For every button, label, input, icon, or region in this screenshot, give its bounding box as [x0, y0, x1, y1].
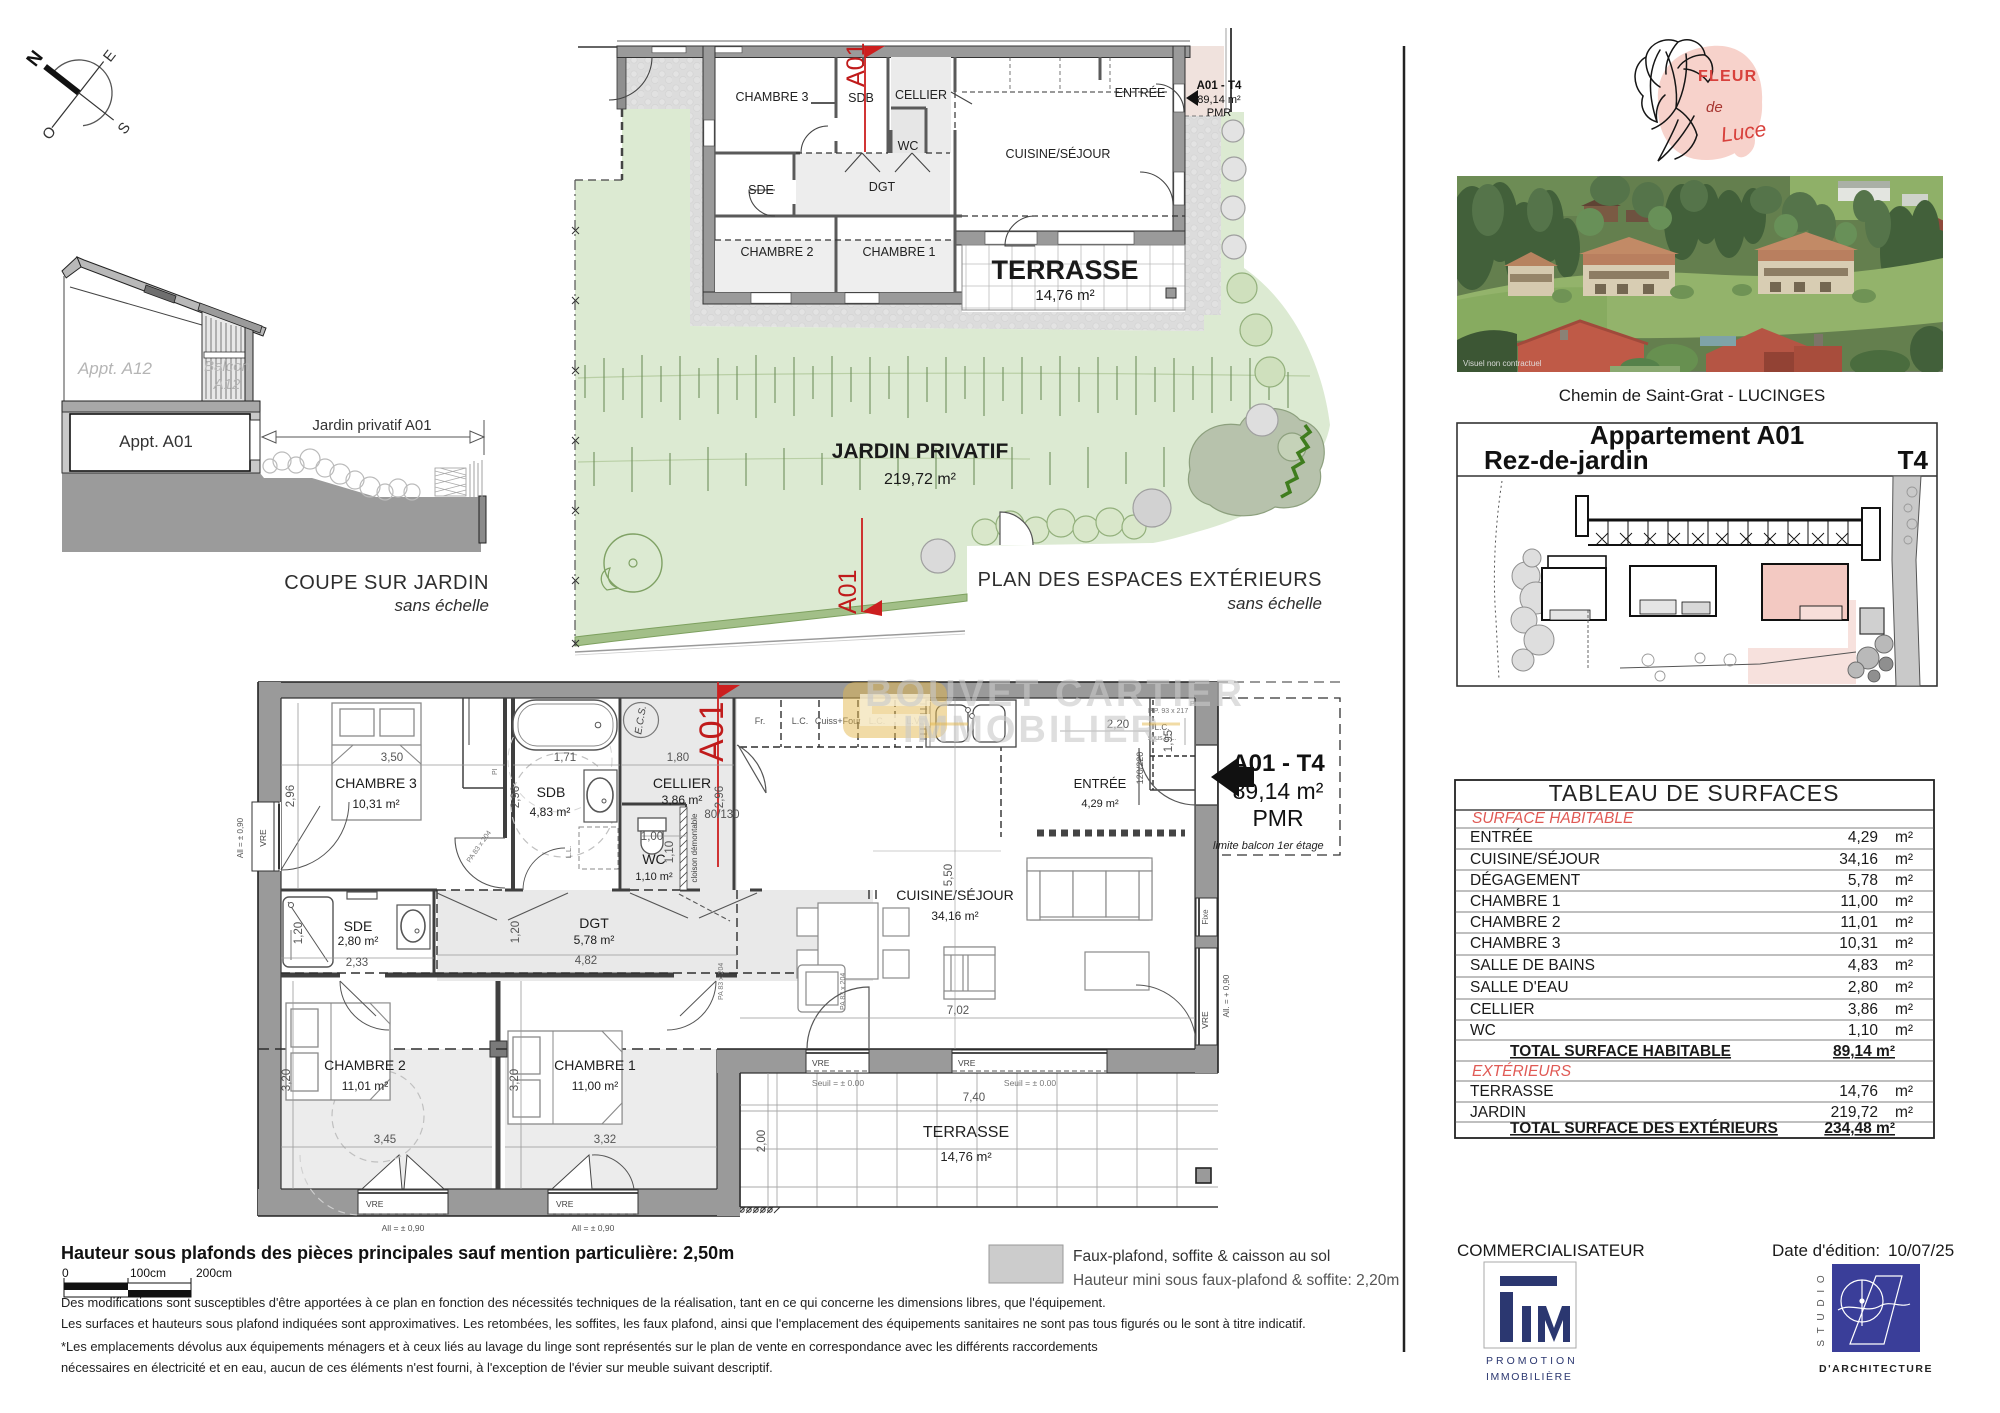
svg-text:D'ARCHITECTURE: D'ARCHITECTURE: [1819, 1363, 1933, 1375]
svg-text:DÉGAGEMENT: DÉGAGEMENT: [1470, 872, 1581, 889]
svg-text:1,20: 1,20: [510, 921, 522, 943]
svg-text:1,95: 1,95: [1163, 730, 1175, 752]
svg-text:COUPE SUR JARDIN: COUPE SUR JARDIN: [284, 572, 489, 594]
svg-text:234,48 m²: 234,48 m²: [1824, 1120, 1895, 1137]
svg-text:5,78 m²: 5,78 m²: [574, 933, 615, 947]
svg-text:CUISINE/SÉJOUR: CUISINE/SÉJOUR: [1006, 146, 1111, 161]
svg-text:2,33: 2,33: [346, 957, 368, 969]
svg-text:SALLE D'EAU: SALLE D'EAU: [1470, 979, 1569, 996]
svg-text:4,83 m²: 4,83 m²: [530, 805, 571, 819]
svg-text:m²: m²: [1895, 1022, 1913, 1039]
svg-text:Visuel non contractuel: Visuel non contractuel: [1463, 359, 1542, 368]
svg-text:PROMOTION: PROMOTION: [1486, 1355, 1578, 1367]
svg-text:Jardin privatif A01: Jardin privatif A01: [312, 417, 431, 434]
svg-text:200cm: 200cm: [196, 1266, 232, 1280]
svg-text:1,20: 1,20: [293, 922, 305, 944]
svg-text:O: O: [39, 123, 60, 143]
svg-text:SDB: SDB: [848, 91, 874, 105]
svg-text:TOTAL SURFACE HABITABLE: TOTAL SURFACE HABITABLE: [1510, 1043, 1731, 1060]
svg-text:S T U D I O: S T U D I O: [1816, 1273, 1827, 1346]
svg-text:1,10: 1,10: [664, 841, 676, 863]
svg-text:Hauteur sous plafonds des pièc: Hauteur sous plafonds des pièces princip…: [61, 1243, 734, 1263]
svg-text:7,02: 7,02: [947, 1005, 969, 1017]
svg-text:m²: m²: [1895, 829, 1913, 846]
svg-text:CELLIER: CELLIER: [1470, 1001, 1535, 1018]
svg-text:14,76: 14,76: [1839, 1083, 1878, 1100]
svg-text:All = ± 0,90: All = ± 0,90: [382, 1223, 425, 1233]
svg-text:ENTRÉE: ENTRÉE: [1115, 85, 1166, 100]
svg-text:CHAMBRE 2: CHAMBRE 2: [324, 1057, 406, 1073]
svg-text:219,72 m²: 219,72 m²: [884, 471, 957, 488]
svg-text:Seuil = ± 0.00: Seuil = ± 0.00: [812, 1078, 864, 1088]
svg-text:FLEUR: FLEUR: [1698, 68, 1757, 85]
svg-text:5,50: 5,50: [943, 864, 955, 886]
svg-text:N: N: [23, 47, 48, 71]
svg-text:0: 0: [62, 1266, 69, 1280]
svg-text:WC: WC: [642, 851, 665, 867]
svg-text:m²: m²: [1895, 872, 1913, 889]
svg-text:3,50: 3,50: [381, 752, 403, 764]
svg-text:sans échelle: sans échelle: [394, 596, 489, 615]
svg-text:Appt. A01: Appt. A01: [119, 432, 193, 451]
svg-text:5,78: 5,78: [1848, 872, 1878, 889]
svg-text:CHAMBRE 2: CHAMBRE 2: [741, 245, 814, 259]
svg-text:A01: A01: [693, 702, 731, 763]
svg-text:SDB: SDB: [537, 784, 566, 800]
svg-text:100cm: 100cm: [130, 1266, 166, 1280]
svg-text:DGT: DGT: [869, 180, 896, 194]
svg-text:VRE: VRE: [1200, 1011, 1210, 1029]
svg-text:2,96: 2,96: [714, 786, 726, 808]
svg-text:L.C.: L.C.: [792, 716, 809, 726]
svg-text:COMMERCIALISATEUR: COMMERCIALISATEUR: [1457, 1241, 1645, 1260]
svg-text:4,29 m²: 4,29 m²: [1081, 798, 1119, 810]
svg-text:Les surfaces et hauteurs sous: Les surfaces et hauteurs sous plafond in…: [61, 1316, 1306, 1331]
svg-text:de: de: [1706, 99, 1723, 116]
svg-text:VRE: VRE: [812, 1058, 830, 1068]
svg-text:All = ± 0,90: All = ± 0,90: [236, 817, 245, 858]
svg-text:SALLE DE BAINS: SALLE DE BAINS: [1470, 957, 1595, 974]
svg-text:VRE: VRE: [556, 1199, 574, 1209]
svg-text:2,96: 2,96: [285, 785, 297, 807]
svg-text:Des modifications sont suscept: Des modifications sont susceptibles d'êt…: [61, 1295, 1106, 1310]
svg-text:Luce: Luce: [1719, 118, 1767, 147]
svg-text:CUISINE/SÉJOUR: CUISINE/SÉJOUR: [1470, 851, 1600, 868]
svg-text:nécessaires en électricité et: nécessaires en électricité et en eau, au…: [61, 1360, 773, 1375]
svg-text:1,80: 1,80: [667, 752, 689, 764]
svg-text:3,20: 3,20: [509, 1069, 521, 1091]
svg-text:3,45: 3,45: [374, 1134, 396, 1146]
svg-text:CHAMBRE 1: CHAMBRE 1: [863, 245, 936, 259]
svg-text:sans échelle: sans échelle: [1227, 594, 1322, 613]
svg-text:4,83: 4,83: [1848, 957, 1878, 974]
svg-text:WC: WC: [898, 139, 919, 153]
svg-text:4,29: 4,29: [1848, 829, 1878, 846]
svg-text:89,14 m²: 89,14 m²: [1833, 1043, 1895, 1060]
svg-text:7,40: 7,40: [963, 1092, 985, 1104]
svg-text:11,00 m²: 11,00 m²: [572, 1079, 618, 1093]
svg-text:CHAMBRE 1: CHAMBRE 1: [1470, 893, 1560, 910]
svg-text:PA 83 x 204: PA 83 x 204: [466, 830, 493, 865]
svg-text:1,71: 1,71: [554, 752, 576, 764]
svg-text:IMMOBILIÈRE: IMMOBILIÈRE: [1486, 1370, 1572, 1383]
svg-text:Hauteur mini sous faux-plafond: Hauteur mini sous faux-plafond & soffite…: [1073, 1272, 1399, 1289]
svg-text:1,10: 1,10: [1848, 1022, 1879, 1039]
svg-text:TERRASSE: TERRASSE: [923, 1124, 1009, 1141]
svg-text:Date d'édition:: Date d'édition:: [1772, 1241, 1880, 1260]
svg-text:S: S: [115, 119, 135, 137]
svg-text:PLAN DES ESPACES EXTÉRIEURS: PLAN DES ESPACES EXTÉRIEURS: [978, 568, 1322, 591]
svg-text:1,00: 1,00: [641, 831, 663, 843]
svg-text:34,16: 34,16: [1839, 851, 1878, 868]
svg-text:TERRASSE: TERRASSE: [1470, 1083, 1554, 1100]
svg-text:CELLIER: CELLIER: [653, 775, 711, 791]
svg-text:m²: m²: [1895, 979, 1913, 996]
svg-text:4,82: 4,82: [575, 955, 597, 967]
svg-text:PA 83 x 204: PA 83 x 204: [840, 973, 847, 1010]
svg-text:PA 83 x 204: PA 83 x 204: [718, 963, 725, 1000]
svg-text:m²: m²: [1895, 1104, 1913, 1121]
svg-text:m²: m²: [1895, 893, 1913, 910]
svg-text:SDE: SDE: [344, 918, 373, 934]
svg-text:10,31: 10,31: [1839, 935, 1878, 952]
svg-text:80/130: 80/130: [704, 809, 739, 821]
svg-text:DGT: DGT: [579, 915, 609, 931]
svg-text:PI: PI: [492, 768, 499, 775]
svg-text:m²: m²: [1895, 935, 1913, 952]
svg-text:A12: A12: [213, 376, 241, 393]
svg-text:PMR: PMR: [1207, 107, 1232, 119]
svg-text:3,86 m²: 3,86 m²: [662, 793, 703, 807]
svg-text:3,20: 3,20: [281, 1069, 293, 1091]
svg-text:219,72: 219,72: [1831, 1104, 1878, 1121]
svg-text:*Les emplacements dévolus aux: *Les emplacements dévolus aux équipement…: [61, 1339, 1098, 1354]
svg-text:CHAMBRE 3: CHAMBRE 3: [736, 90, 809, 104]
svg-text:VRE: VRE: [958, 1058, 976, 1068]
svg-text:m²: m²: [1895, 1001, 1913, 1018]
svg-text:Fixe: Fixe: [1201, 909, 1210, 925]
svg-text:EXTÉRIEURS: EXTÉRIEURS: [1472, 1063, 1572, 1080]
svg-text:TOTAL SURFACE DES EXTÉRIEURS: TOTAL SURFACE DES EXTÉRIEURS: [1510, 1120, 1778, 1137]
svg-text:All. = + 0,90: All. = + 0,90: [1222, 974, 1231, 1017]
svg-text:L.L.: L.L.: [564, 846, 573, 859]
svg-text:Appt. A12: Appt. A12: [77, 359, 153, 378]
svg-text:CELLIER: CELLIER: [895, 88, 947, 102]
svg-text:JARDIN: JARDIN: [1470, 1104, 1526, 1121]
svg-text:m²: m²: [1895, 957, 1913, 974]
svg-text:10,31 m²: 10,31 m²: [352, 797, 399, 811]
svg-text:Faux-plafond, soffite & caisso: Faux-plafond, soffite & caisson au sol: [1073, 1248, 1330, 1265]
svg-text:Chemin de Saint-Grat - LUCINGE: Chemin de Saint-Grat - LUCINGES: [1559, 386, 1825, 405]
svg-text:WC: WC: [1470, 1022, 1496, 1039]
svg-text:limite balcon 1er étage: limite balcon 1er étage: [1213, 840, 1324, 852]
svg-text:3,86: 3,86: [1848, 1001, 1878, 1018]
svg-text:11,00: 11,00: [1840, 893, 1878, 910]
svg-text:Balcon: Balcon: [204, 358, 250, 375]
svg-text:14,76 m²: 14,76 m²: [940, 1149, 992, 1164]
svg-text:CHAMBRE 3: CHAMBRE 3: [1470, 935, 1560, 952]
svg-text:CHAMBRE 3: CHAMBRE 3: [335, 775, 417, 791]
svg-text:JARDIN PRIVATIF: JARDIN PRIVATIF: [832, 440, 1009, 463]
svg-text:A01: A01: [842, 43, 870, 87]
svg-text:14,76 m²: 14,76 m²: [1035, 287, 1094, 304]
svg-text:m²: m²: [1895, 914, 1913, 931]
svg-text:2,80 m²: 2,80 m²: [338, 934, 379, 948]
svg-text:cloison démontable: cloison démontable: [690, 813, 699, 882]
svg-text:TERRASSE: TERRASSE: [991, 255, 1138, 285]
svg-text:T4: T4: [1898, 445, 1929, 475]
svg-text:2,00: 2,00: [756, 1130, 768, 1152]
svg-text:3,32: 3,32: [594, 1134, 616, 1146]
svg-text:Seuil = ± 0.00: Seuil = ± 0.00: [1004, 1078, 1056, 1088]
svg-text:ENTRÉE: ENTRÉE: [1074, 776, 1127, 791]
svg-text:PMR: PMR: [1252, 805, 1303, 831]
svg-text:SDE: SDE: [748, 183, 774, 197]
svg-text:CHAMBRE 2: CHAMBRE 2: [1470, 914, 1560, 931]
svg-text:m²: m²: [1895, 1083, 1913, 1100]
svg-text:CHAMBRE 1: CHAMBRE 1: [554, 1057, 636, 1073]
svg-text:2,80: 2,80: [1848, 979, 1879, 996]
svg-text:ENTRÉE: ENTRÉE: [1470, 829, 1533, 846]
svg-text:2,96: 2,96: [510, 786, 522, 808]
svg-text:IMMOBILIER: IMMOBILIER: [903, 709, 1161, 751]
svg-text:1,10 m²: 1,10 m²: [635, 871, 673, 883]
svg-text:10/07/25: 10/07/25: [1888, 1241, 1954, 1260]
svg-text:A01 - T4: A01 - T4: [1197, 80, 1242, 92]
svg-text:TABLEAU DE SURFACES: TABLEAU DE SURFACES: [1549, 780, 1840, 806]
svg-text:m²: m²: [1895, 851, 1913, 868]
svg-text:A01: A01: [834, 570, 862, 614]
svg-text:11,01 m²: 11,01 m²: [342, 1079, 388, 1093]
svg-text:11,01: 11,01: [1840, 914, 1878, 931]
svg-text:SURFACE HABITABLE: SURFACE HABITABLE: [1472, 810, 1634, 827]
svg-text:Fr.: Fr.: [755, 716, 766, 726]
svg-text:89,14 m²: 89,14 m²: [1197, 94, 1241, 106]
svg-text:VRE: VRE: [258, 829, 268, 847]
svg-text:All = ± 0,90: All = ± 0,90: [572, 1223, 615, 1233]
svg-text:Rez-de-jardin: Rez-de-jardin: [1484, 445, 1649, 475]
svg-text:VRE: VRE: [366, 1199, 384, 1209]
